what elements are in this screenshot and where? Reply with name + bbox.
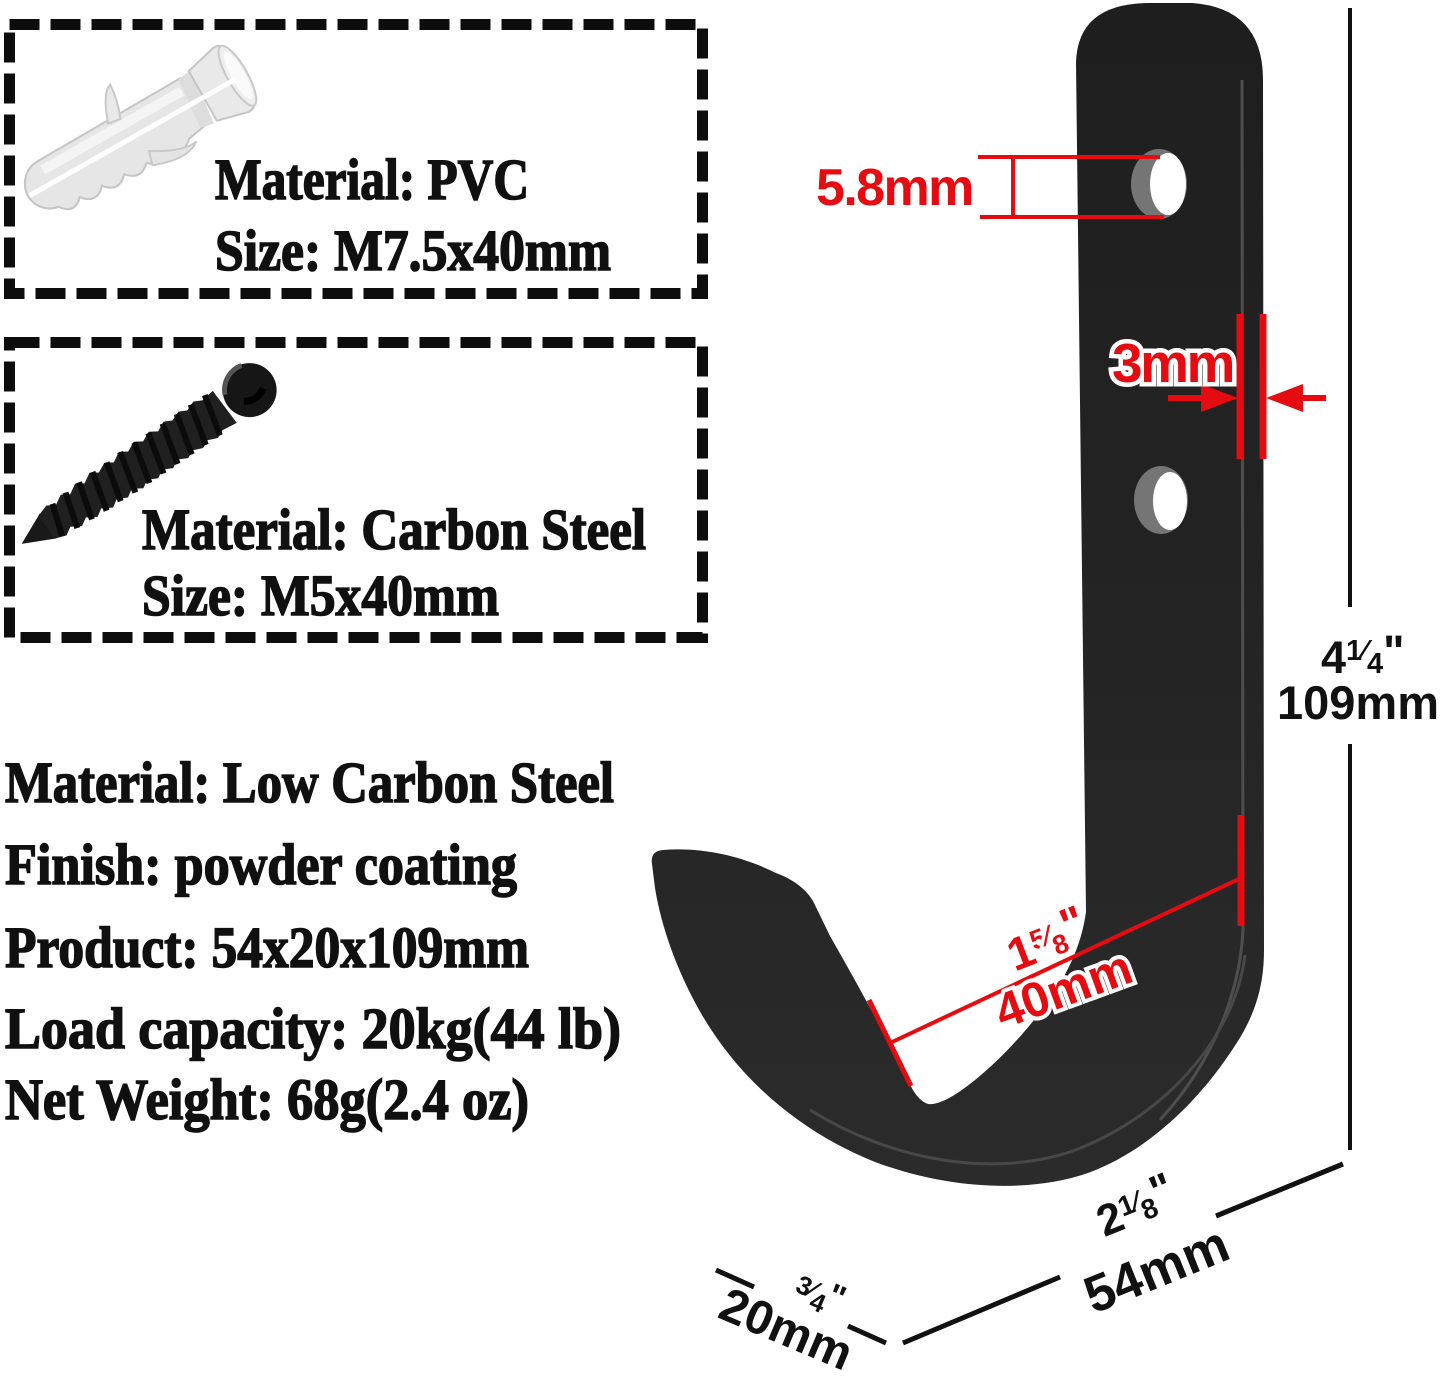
- svg-text:Load capacity: 20kg(44 lb): Load capacity: 20kg(44 lb): [5, 996, 621, 1061]
- svg-text:5.8mm: 5.8mm: [816, 159, 973, 217]
- svg-text:Net Weight: 68g(2.4 oz): Net Weight: 68g(2.4 oz): [5, 1067, 529, 1132]
- svg-text:Material: PVC: Material: PVC: [215, 147, 529, 212]
- svg-text:Size: M7.5x40mm: Size: M7.5x40mm: [215, 218, 611, 283]
- svg-text:109mm: 109mm: [1277, 676, 1439, 729]
- svg-text:Material: Carbon Steel: Material: Carbon Steel: [142, 497, 646, 562]
- svg-text:3mm: 3mm: [1112, 332, 1233, 394]
- svg-text:Material: Low Carbon Steel: Material: Low Carbon Steel: [5, 750, 614, 815]
- svg-text:Size: M5x40mm: Size: M5x40mm: [142, 563, 499, 628]
- svg-text:Finish: powder coating: Finish: powder coating: [5, 832, 517, 897]
- svg-text:Product: 54x20x109mm: Product: 54x20x109mm: [5, 915, 529, 980]
